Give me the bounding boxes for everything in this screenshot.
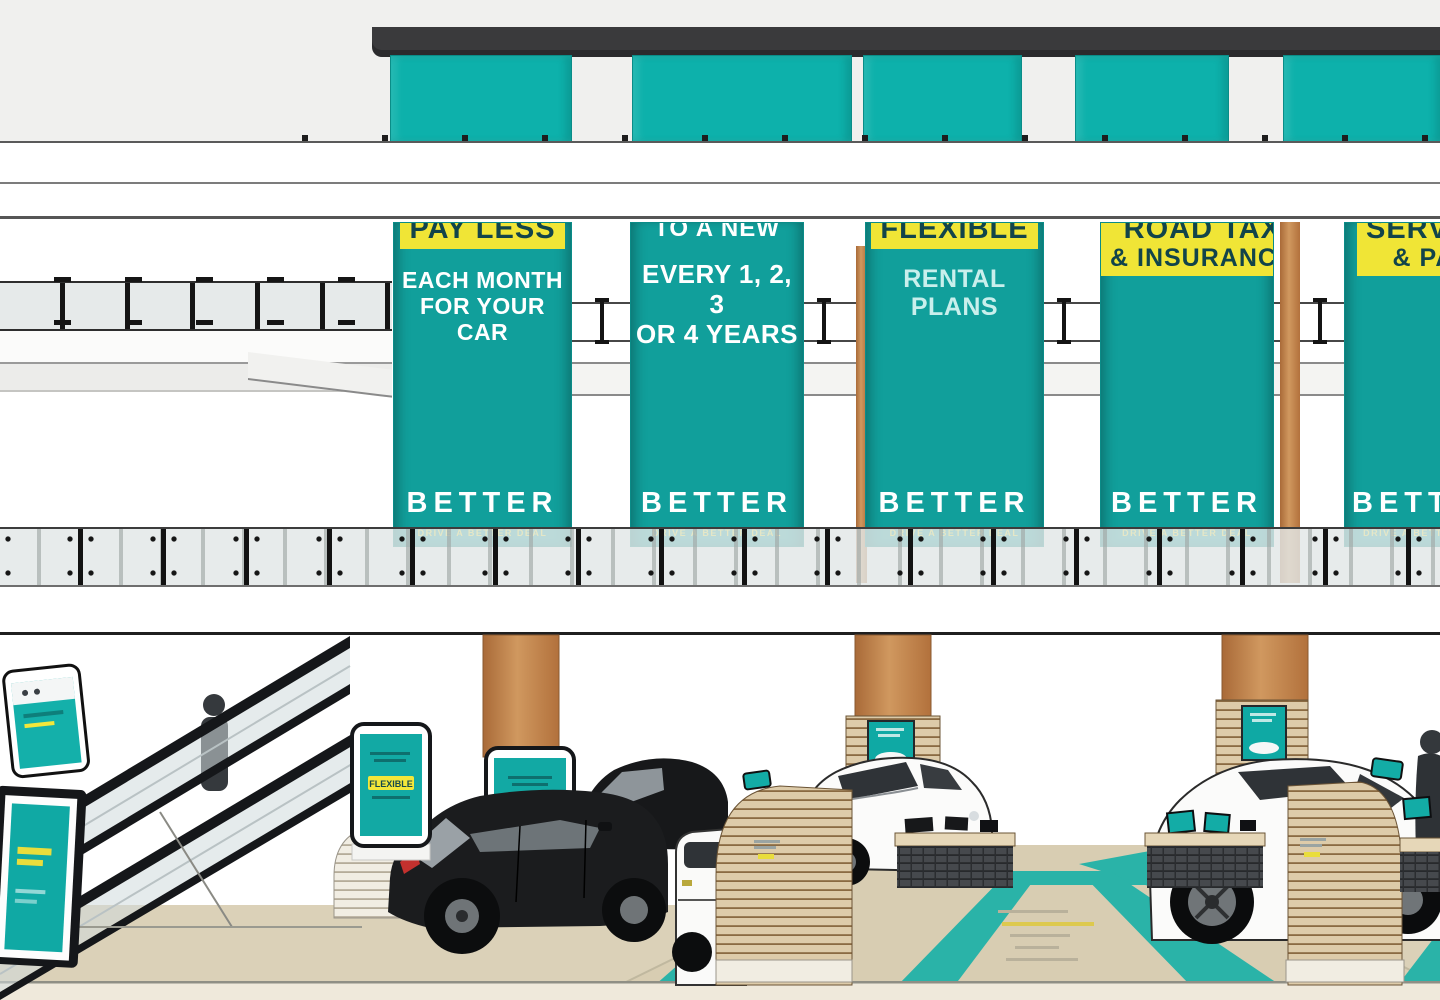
facade-glass-panel (390, 55, 572, 143)
banner-highlight-clip: PAY LESS (394, 223, 571, 259)
walkway-rail-post (1062, 298, 1066, 344)
facade-glass-panel (1075, 55, 1229, 143)
showroom-scene: BETTER FLEXIBLE (0, 632, 1440, 1000)
curved-partition (716, 770, 852, 985)
better-logo: BETTER (394, 487, 571, 520)
glass-balustrade (0, 527, 1440, 587)
interior-columns (483, 635, 1308, 776)
facade-glass-panel (863, 55, 1022, 143)
tablet (743, 770, 771, 789)
banner-highlight-clip: ROAD TAX & INSURANCE (1101, 223, 1273, 285)
facade-glass-panel (1283, 55, 1440, 143)
consultation-desk (895, 816, 1015, 888)
balustrade-bolts (0, 536, 1440, 542)
walkway-fascia-line-bottom (0, 216, 1440, 219)
walkway-rail-post (822, 298, 826, 344)
banner-pay-less: PAY LESS EACH MONTH FOR YOUR CAR BETTER … (393, 222, 572, 547)
balustrade-bolts (0, 570, 1440, 576)
banner-highlight-text: SERVICING (1366, 223, 1440, 245)
walkway-rail-post (1318, 298, 1322, 344)
banner-line: EVERY 1, 2, 3 (631, 259, 803, 319)
bridge-railing-post-tops (0, 277, 392, 282)
banner-highlight-text: PAY LESS (409, 223, 555, 245)
bridge-deck (0, 329, 392, 364)
banner-highlight-text: ROAD TAX (1110, 223, 1273, 245)
banner-new-car: TO A NEW CAR EVERY 1, 2, 3 OR 4 YEARS BE… (630, 222, 804, 547)
better-logo: BETTER (1345, 487, 1440, 520)
banner-line: OR 4 YEARS (631, 319, 803, 349)
facade-glass-panel (632, 55, 852, 143)
phone-display-billboard (0, 786, 87, 968)
roof-band (372, 27, 1440, 57)
bridge-railing-post-feet (0, 320, 392, 325)
banner-line: RENTAL PLANS (866, 265, 1043, 321)
better-logo: BETTER (631, 487, 803, 520)
banner-road-tax: ROAD TAX & INSURANCE BETTER DRIVE A BETT… (1100, 222, 1274, 547)
banner-line: EACH MONTH (394, 267, 571, 293)
kiosk-flexible-label: FLEXIBLE (369, 779, 413, 789)
banner-highlight-text: FLEXIBLE (880, 223, 1028, 245)
banner-servicing: SERVICING & PARTS BETTER DRIVE A BETTER … (1344, 222, 1440, 547)
banner-highlight-text: & INSURANCE (1110, 245, 1273, 272)
banner-line: FOR YOUR CAR (394, 293, 571, 345)
banner-topline-clip: TO A NEW CAR (631, 223, 803, 245)
partition-brand-mark (758, 854, 774, 859)
phone-display-tall (3, 664, 90, 777)
roof-terrace-railing (0, 141, 1440, 143)
phone-kiosk-flexible: FLEXIBLE (352, 724, 430, 860)
tablet (1371, 758, 1403, 780)
better-logo: BETTER (866, 487, 1043, 520)
far-right-desk (1400, 730, 1440, 892)
banner-highlight-clip: SERVICING & PARTS (1345, 223, 1440, 285)
banner-highlight-text: & PARTS (1366, 245, 1440, 272)
showroom-concept-rendering: PAY LESS EACH MONTH FOR YOUR CAR BETTER … (0, 0, 1440, 1000)
person (1420, 730, 1440, 754)
tablet (1403, 797, 1431, 819)
walkway-fascia-line-top (0, 182, 1440, 184)
partition-brand-mark (1304, 852, 1320, 857)
banner-flexible: FLEXIBLE RENTAL PLANS BETTER DRIVE A BET… (865, 222, 1044, 547)
banner-top-line: TO A NEW CAR (631, 223, 803, 245)
walkway-rail-post (600, 298, 604, 344)
banner-highlight-clip: FLEXIBLE (866, 223, 1043, 259)
better-logo: BETTER (1101, 487, 1273, 520)
